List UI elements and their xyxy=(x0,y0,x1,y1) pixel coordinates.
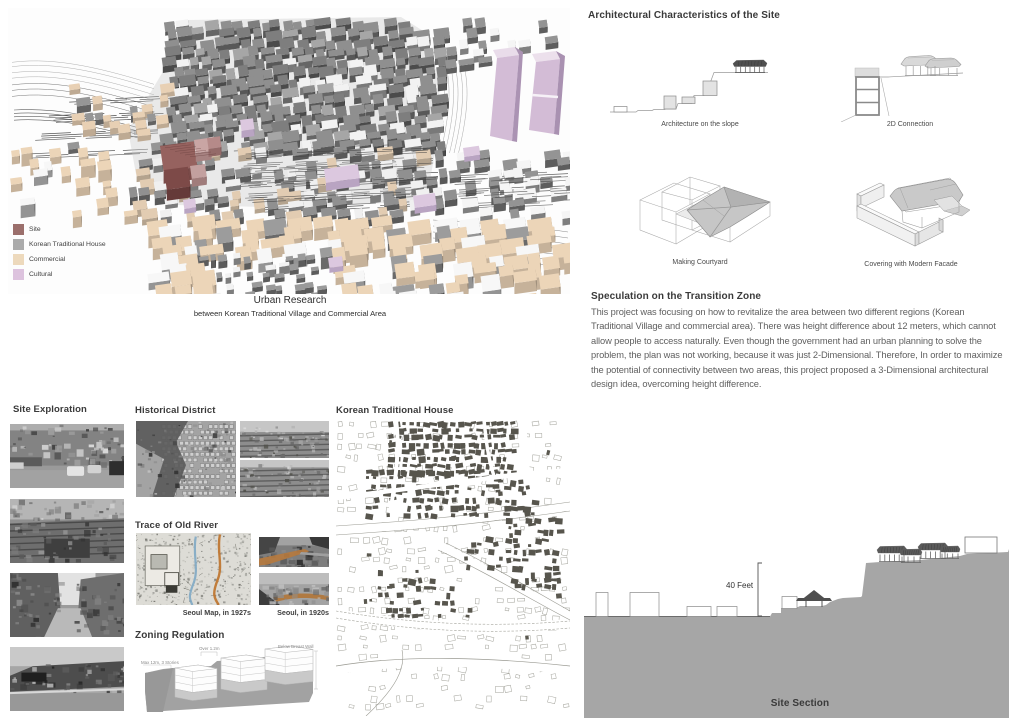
svg-text:Over 1.2m: Over 1.2m xyxy=(199,646,220,651)
svg-text:Below Breast Wall: Below Breast Wall xyxy=(278,644,313,649)
svg-text:Max 12m, 3 Stories: Max 12m, 3 Stories xyxy=(141,660,180,665)
svg-text:40 Feet: 40 Feet xyxy=(726,581,754,590)
